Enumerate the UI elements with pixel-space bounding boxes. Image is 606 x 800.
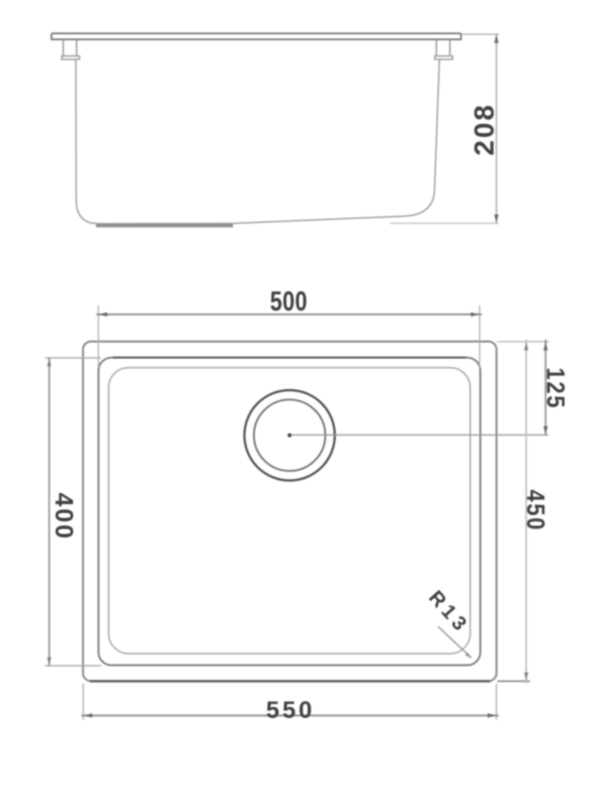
svg-text:550: 550 — [266, 697, 315, 724]
svg-text:125: 125 — [542, 368, 570, 410]
svg-text:400: 400 — [49, 493, 77, 541]
svg-text:500: 500 — [270, 286, 308, 317]
svg-text:R13: R13 — [424, 587, 473, 638]
svg-text:208: 208 — [469, 103, 500, 156]
svg-text:450: 450 — [522, 490, 550, 532]
